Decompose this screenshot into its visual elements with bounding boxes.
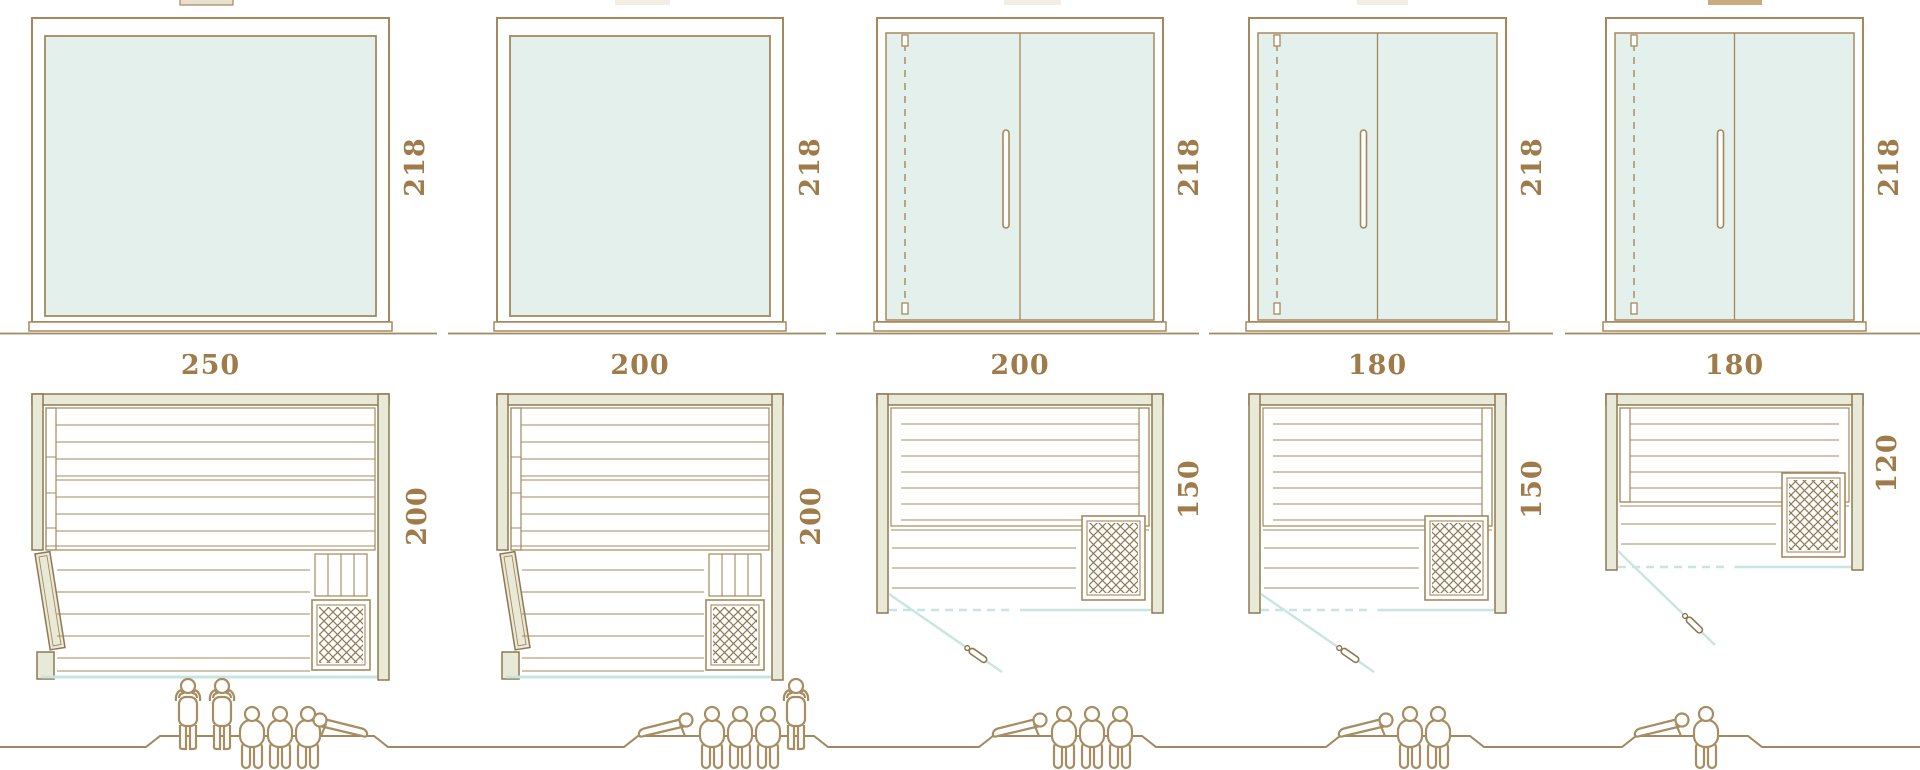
width-label-unit-5: 180 (1606, 351, 1863, 379)
heater-lattice-icon (1782, 473, 1845, 557)
capacity-group-unit-3 (993, 707, 1132, 768)
door-handle-icon (964, 644, 988, 663)
depth-label-unit-4: 150 (1518, 454, 1546, 524)
width-label-unit-3: 200 (877, 351, 1163, 379)
sitting-person-icon (240, 707, 264, 768)
plan-unit-2 (497, 394, 783, 680)
height-label-unit-1: 218 (401, 132, 429, 202)
plan-unit-5 (1606, 394, 1863, 645)
capacity-group-unit-5 (1635, 707, 1718, 768)
sitting-person-icon (1080, 707, 1104, 768)
heater-lattice-icon (1082, 516, 1145, 600)
height-label-unit-2: 218 (796, 132, 824, 202)
sauna-size-diagram: 250 200 200 180 180 218 218 218 218 218 … (0, 0, 1920, 770)
lying-person-icon (639, 714, 693, 737)
plan-unit-4 (1249, 394, 1506, 672)
top-cutoff-tabs (180, 0, 1762, 5)
sitting-person-icon (700, 707, 724, 768)
plan-unit-3 (877, 394, 1163, 672)
depth-label-unit-3: 150 (1175, 454, 1203, 524)
width-label-unit-1: 250 (32, 351, 389, 379)
heater-lattice-icon (1425, 516, 1488, 600)
capacity-group-unit-4 (1339, 707, 1450, 768)
heater-lattice-icon (312, 600, 370, 670)
door-handle-icon (1003, 130, 1009, 228)
width-label-unit-4: 180 (1249, 351, 1506, 379)
elevation-unit-3 (874, 18, 1166, 331)
heater-lattice-icon (706, 600, 764, 670)
diagram-canvas (0, 0, 1920, 770)
depth-label-unit-2: 200 (797, 481, 825, 551)
sitting-person-icon (268, 707, 292, 768)
open-wood-door (500, 552, 530, 650)
width-label-unit-2: 200 (497, 351, 783, 379)
depth-label-unit-1: 200 (403, 481, 431, 551)
sitting-person-icon (1694, 707, 1718, 768)
capacity-group-unit-1 (176, 679, 367, 768)
sitting-person-icon (756, 707, 780, 768)
open-wood-door (35, 552, 65, 650)
depth-label-unit-5: 120 (1873, 428, 1901, 498)
height-label-unit-4: 218 (1518, 132, 1546, 202)
elevation-unit-5 (1603, 18, 1866, 331)
lying-person-icon (314, 714, 368, 737)
sitting-person-icon (1108, 707, 1132, 768)
sitting-person-icon (728, 707, 752, 768)
height-label-unit-3: 218 (1175, 132, 1203, 202)
elevation-unit-2 (494, 18, 786, 331)
lying-person-icon (993, 714, 1047, 737)
door-handle-icon (1718, 130, 1724, 228)
capacity-group-unit-2 (639, 679, 808, 768)
standing-person-icon (784, 679, 808, 749)
door-handle-icon (1361, 130, 1367, 228)
elevation-unit-1 (29, 18, 392, 331)
sitting-person-icon (1398, 707, 1422, 768)
plan-unit-1 (32, 394, 389, 680)
door-handle-icon (1681, 612, 1703, 634)
height-label-unit-5: 218 (1875, 132, 1903, 202)
door-handle-icon (1336, 644, 1360, 663)
lying-person-icon (1635, 714, 1689, 737)
sitting-person-icon (1426, 707, 1450, 768)
lying-person-icon (1339, 714, 1393, 737)
elevation-unit-4 (1246, 18, 1509, 331)
standing-person-icon (176, 679, 200, 749)
standing-person-icon (210, 679, 234, 749)
sitting-person-icon (1052, 707, 1076, 768)
